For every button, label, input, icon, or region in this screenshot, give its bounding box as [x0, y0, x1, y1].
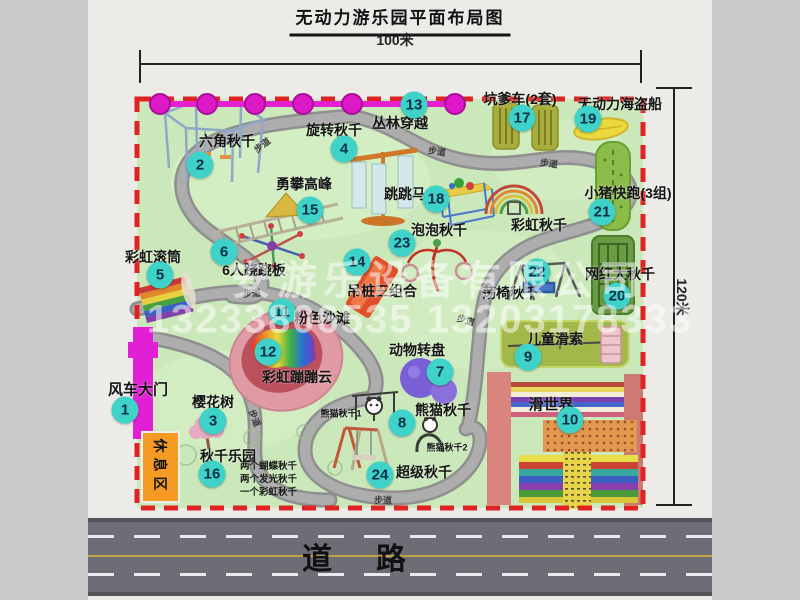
- marker-badge-2: 2: [187, 152, 214, 179]
- trail-label: 步道: [427, 143, 447, 158]
- marker-badge-19: 19: [575, 106, 602, 133]
- trail-label: 步道: [539, 155, 559, 170]
- marker-badge-3: 3: [200, 408, 227, 435]
- marker-badge-17: 17: [509, 105, 536, 132]
- attraction-label-18: 跳跳马: [384, 184, 426, 204]
- rainbow-swing-label: 彩虹秋千: [511, 215, 567, 235]
- marker-badge-13: 13: [401, 92, 428, 119]
- marker-badge-18: 18: [423, 186, 450, 213]
- panda-swing1-label: 熊猫秋千1: [320, 407, 361, 420]
- marker-badge-5: 5: [147, 262, 174, 289]
- marker-badge-15: 15: [297, 197, 324, 224]
- attraction-label-7: 动物转盘: [389, 340, 445, 360]
- watermark-phones: 13233806535 13203178333: [147, 298, 694, 343]
- marker-badge-4: 4: [331, 136, 358, 163]
- attraction-label-23: 泡泡秋千: [411, 220, 467, 240]
- attraction-label-24: 超级秋千: [396, 462, 452, 482]
- attraction-label-2: 六角秋千: [199, 131, 255, 151]
- marker-badge-1: 1: [112, 397, 139, 424]
- attraction-label-1: 风车大门: [108, 379, 168, 400]
- marker-badge-10: 10: [557, 407, 584, 434]
- attraction-label-8: 熊猫秋千: [415, 400, 471, 420]
- attraction-label-15: 勇攀高峰: [276, 174, 332, 194]
- marker-badge-12: 12: [255, 339, 282, 366]
- sublist-item-3: 一个彩虹秋千: [240, 486, 297, 499]
- swing-paradise-sublist: 两个蝴蝶秋千 两个发光秋千 一个彩虹秋千: [240, 460, 297, 499]
- width-dimension-label: 100米: [376, 30, 413, 50]
- panda-swing2-label: 熊猫秋千2: [426, 441, 467, 454]
- marker-badge-9: 9: [515, 344, 542, 371]
- marker-badge-7: 7: [427, 359, 454, 386]
- marker-badge-8: 8: [389, 410, 416, 437]
- rest-area-label: 休息区: [150, 439, 170, 496]
- screenshot-stage: 无动力游乐园平面布局图 100米 120米 风车大门 六角秋千 樱花树 旋转秋千…: [0, 0, 800, 600]
- attraction-label-4: 旋转秋千: [306, 120, 362, 140]
- trail-label: 步道: [374, 494, 392, 507]
- attraction-label-12: 彩虹蹦蹦云: [262, 367, 332, 387]
- marker-badge-21: 21: [589, 199, 616, 226]
- road-label: 道路: [302, 534, 450, 578]
- sublist-item-2: 两个发光秋千: [240, 473, 297, 486]
- marker-badge-24: 24: [367, 462, 394, 489]
- marker-badge-16: 16: [199, 461, 226, 488]
- sublist-item-1: 两个蝴蝶秋千: [240, 460, 297, 473]
